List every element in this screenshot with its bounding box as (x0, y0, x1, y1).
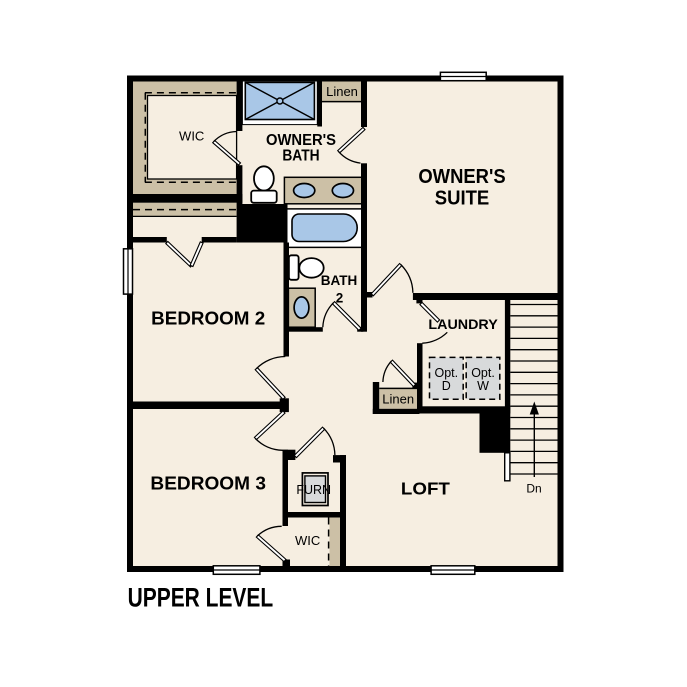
svg-text:D: D (442, 379, 451, 393)
svg-text:WIC: WIC (179, 128, 204, 143)
svg-text:WIC: WIC (295, 533, 320, 548)
svg-text:UPPER LEVEL: UPPER LEVEL (128, 582, 274, 612)
svg-text:Dn: Dn (526, 482, 541, 496)
svg-text:BATH: BATH (321, 273, 358, 288)
svg-text:SUITE: SUITE (435, 188, 490, 210)
svg-text:FURN: FURN (296, 483, 331, 497)
svg-text:LAUNDRY: LAUNDRY (428, 316, 498, 332)
svg-text:OWNER'S: OWNER'S (418, 166, 505, 188)
svg-text:BEDROOM 3: BEDROOM 3 (150, 473, 266, 494)
svg-text:2: 2 (336, 291, 344, 306)
svg-text:BEDROOM 2: BEDROOM 2 (151, 307, 265, 328)
svg-text:LOFT: LOFT (401, 478, 450, 498)
svg-text:Opt.: Opt. (434, 366, 458, 380)
svg-text:W: W (477, 379, 489, 393)
svg-text:Linen: Linen (382, 391, 414, 406)
svg-text:BATH: BATH (282, 147, 319, 164)
svg-text:Opt.: Opt. (471, 366, 495, 380)
svg-text:Linen: Linen (326, 84, 358, 99)
